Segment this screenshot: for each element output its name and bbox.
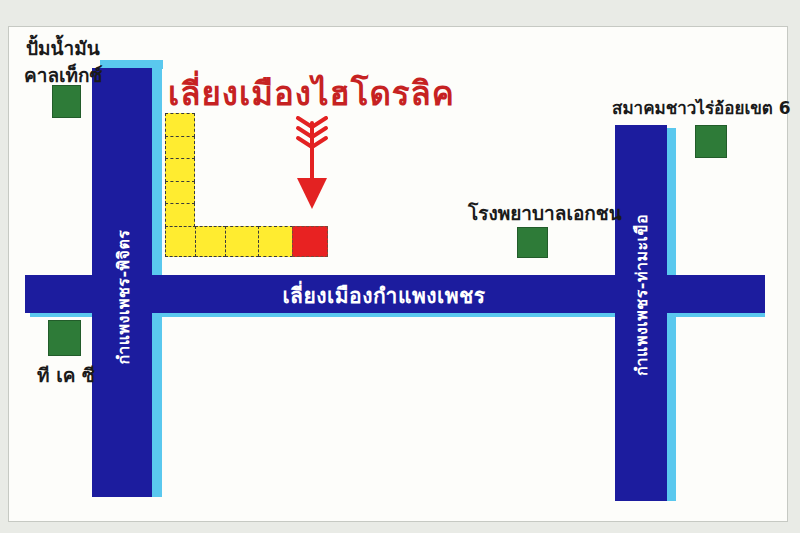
shop-block xyxy=(165,136,195,159)
shop-block xyxy=(165,158,195,182)
shop-block xyxy=(195,226,226,257)
caltex-label-line1: ปั้มน้ำมัน xyxy=(26,33,100,63)
hospital-landmark-square xyxy=(517,227,548,258)
road-label-right-vertical: กำแพงเพชร-ท่ามะเขือ xyxy=(629,214,654,376)
road-label-left-vertical: กำแพงเพชร-พิจิตร xyxy=(111,230,136,365)
caltex-landmark-square xyxy=(52,85,81,118)
shop-block xyxy=(258,226,293,257)
road-label-horizontal: เลี่ยงเมืองกำแพงเพชร xyxy=(282,279,485,312)
map-canvas: เลี่ยงเมืองกำแพงเพชร กำแพงเพชร-พิจิตร กำ… xyxy=(0,0,800,533)
shop-block xyxy=(225,226,259,257)
page-title: เลี่ยงเมืองไฮโดรลิค xyxy=(168,67,455,120)
shop-block-corner xyxy=(165,226,196,257)
shop-block xyxy=(165,113,195,137)
destination-arrow-icon xyxy=(292,116,332,212)
tkc-landmark-square xyxy=(48,320,81,356)
destination-block xyxy=(292,226,328,257)
shop-block xyxy=(165,203,195,227)
sugarcane-association-label: สมาคมชาวไร่อ้อยเขต 6 xyxy=(612,94,791,121)
sugarcane-association-landmark-square xyxy=(695,125,727,158)
tkc-label: ที เค ซี xyxy=(37,360,95,390)
shop-block xyxy=(165,181,195,204)
hospital-label: โรงพยาบาลเอกชน xyxy=(468,198,622,228)
